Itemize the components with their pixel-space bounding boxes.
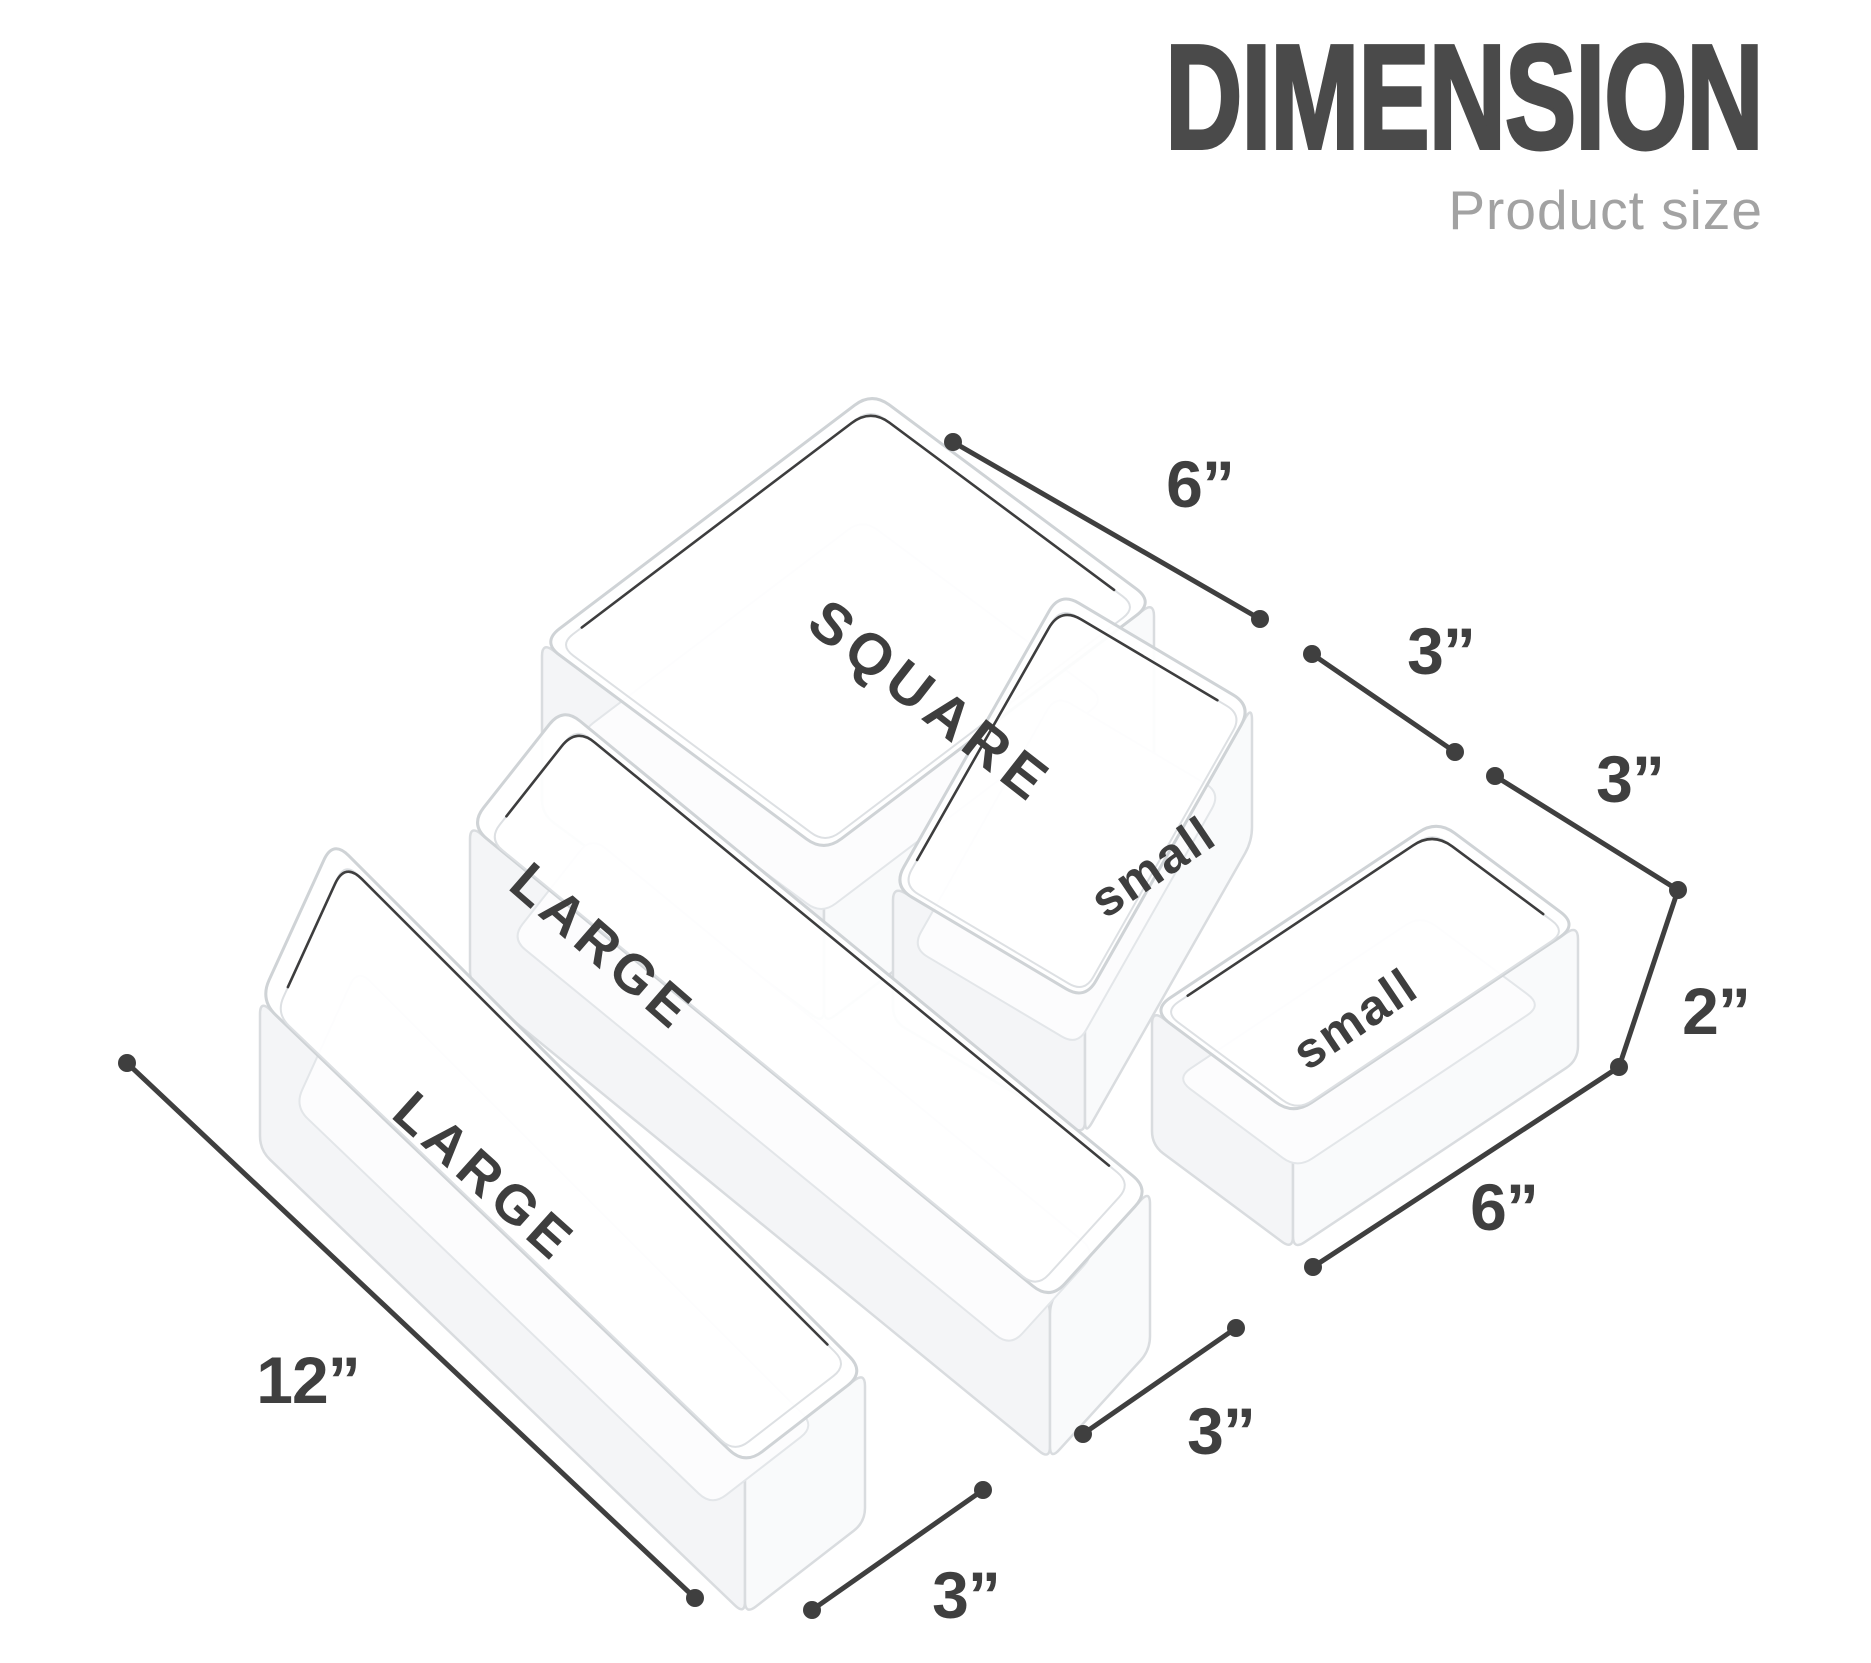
dim-label-height: 2” <box>1682 974 1750 1048</box>
dim-dot <box>1074 1425 1092 1443</box>
dim-dot <box>1227 1319 1245 1337</box>
dim-label-small2-length: 6” <box>1470 1170 1538 1244</box>
title-block: DIMENSION Product size <box>933 24 1763 242</box>
dim-dot <box>686 1589 704 1607</box>
dim-dot <box>944 433 962 451</box>
dim-label-large1-width: 3” <box>932 1558 1000 1632</box>
dim-label-small2-width: 3” <box>1596 742 1664 816</box>
dim-line-height <box>1619 890 1678 1067</box>
dim-dot <box>803 1601 821 1619</box>
dim-label-small1-width: 3” <box>1407 614 1475 688</box>
dim-label-large1-length: 12” <box>256 1343 359 1417</box>
dim-dot <box>1486 767 1504 785</box>
dim-dot <box>1303 645 1321 663</box>
dim-label-large2-width: 3” <box>1187 1394 1255 1468</box>
page-subtitle: Product size <box>933 178 1763 242</box>
page-title: DIMENSION <box>1166 24 1763 172</box>
dim-dot <box>1251 610 1269 628</box>
dim-dot <box>1304 1258 1322 1276</box>
dim-dot <box>1446 743 1464 761</box>
dim-dot <box>974 1481 992 1499</box>
dim-dot <box>118 1054 136 1072</box>
dimension-diagram: 6” 3” 3” 2” 6” 3” 12” 3” SQUARE small sm… <box>0 0 1871 1663</box>
dim-label-square-width: 6” <box>1166 447 1234 521</box>
